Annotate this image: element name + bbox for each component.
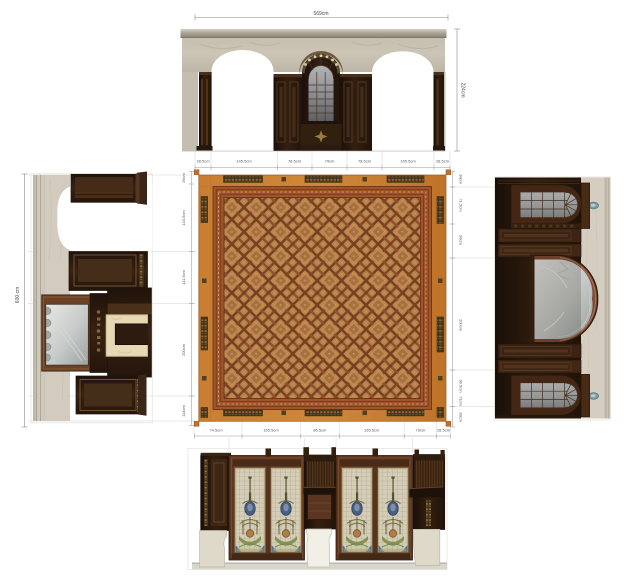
svg-text:90.5cm: 90.5cm [459, 379, 464, 393]
svg-text:28.5cm: 28.5cm [196, 159, 210, 164]
svg-text:145.5cm: 145.5cm [400, 159, 416, 164]
svg-text:78.5cm: 78.5cm [288, 159, 302, 164]
svg-text:71.5cm: 71.5cm [459, 198, 464, 212]
svg-text:569cm: 569cm [313, 11, 328, 17]
svg-text:200cm: 200cm [181, 343, 186, 356]
svg-text:144.5cm: 144.5cm [181, 210, 186, 226]
svg-text:111.5cm: 111.5cm [181, 269, 186, 284]
svg-text:78.5cm: 78.5cm [358, 159, 372, 164]
svg-text:74.5cm: 74.5cm [209, 428, 223, 433]
svg-text:165.5cm: 165.5cm [263, 428, 279, 433]
svg-text:28.5cm: 28.5cm [436, 159, 450, 164]
svg-text:600 cm: 600 cm [15, 287, 21, 303]
svg-text:79cm: 79cm [325, 159, 335, 164]
svg-text:86.5cm: 86.5cm [313, 428, 327, 433]
svg-text:28.5cm: 28.5cm [437, 428, 451, 433]
svg-text:114cm: 114cm [181, 404, 186, 416]
svg-text:145.5cm: 145.5cm [236, 159, 252, 164]
svg-text:224cm: 224cm [460, 82, 466, 97]
svg-text:26cm: 26cm [181, 172, 186, 182]
svg-text:38cm: 38cm [459, 412, 464, 422]
svg-text:71cm: 71cm [459, 396, 464, 406]
svg-text:38cm: 38cm [459, 174, 464, 184]
svg-text:165.5cm: 165.5cm [364, 428, 380, 433]
svg-text:96cm: 96cm [459, 235, 464, 245]
svg-text:79cm: 79cm [416, 428, 426, 433]
svg-text:200cm: 200cm [459, 319, 464, 332]
